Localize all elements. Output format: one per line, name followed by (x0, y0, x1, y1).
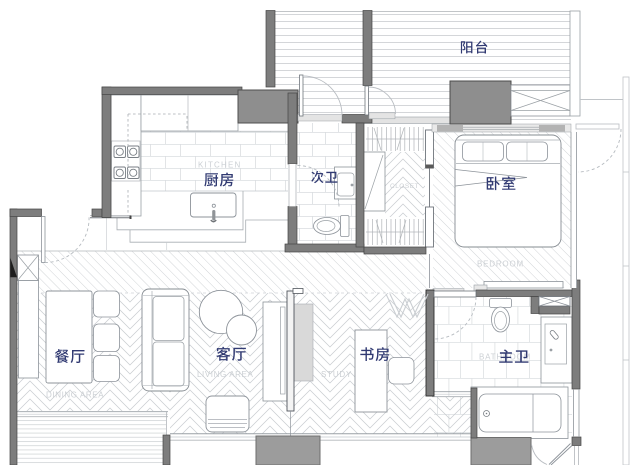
svg-text:CLOSET: CLOSET (390, 183, 419, 190)
svg-text:DINING AREA: DINING AREA (46, 391, 104, 400)
svg-text:KITCHEN: KITCHEN (198, 161, 242, 170)
svg-text:LIVING AREA: LIVING AREA (197, 370, 253, 379)
svg-text:BEDROOM: BEDROOM (477, 260, 524, 269)
svg-text:STUDY: STUDY (321, 370, 352, 379)
